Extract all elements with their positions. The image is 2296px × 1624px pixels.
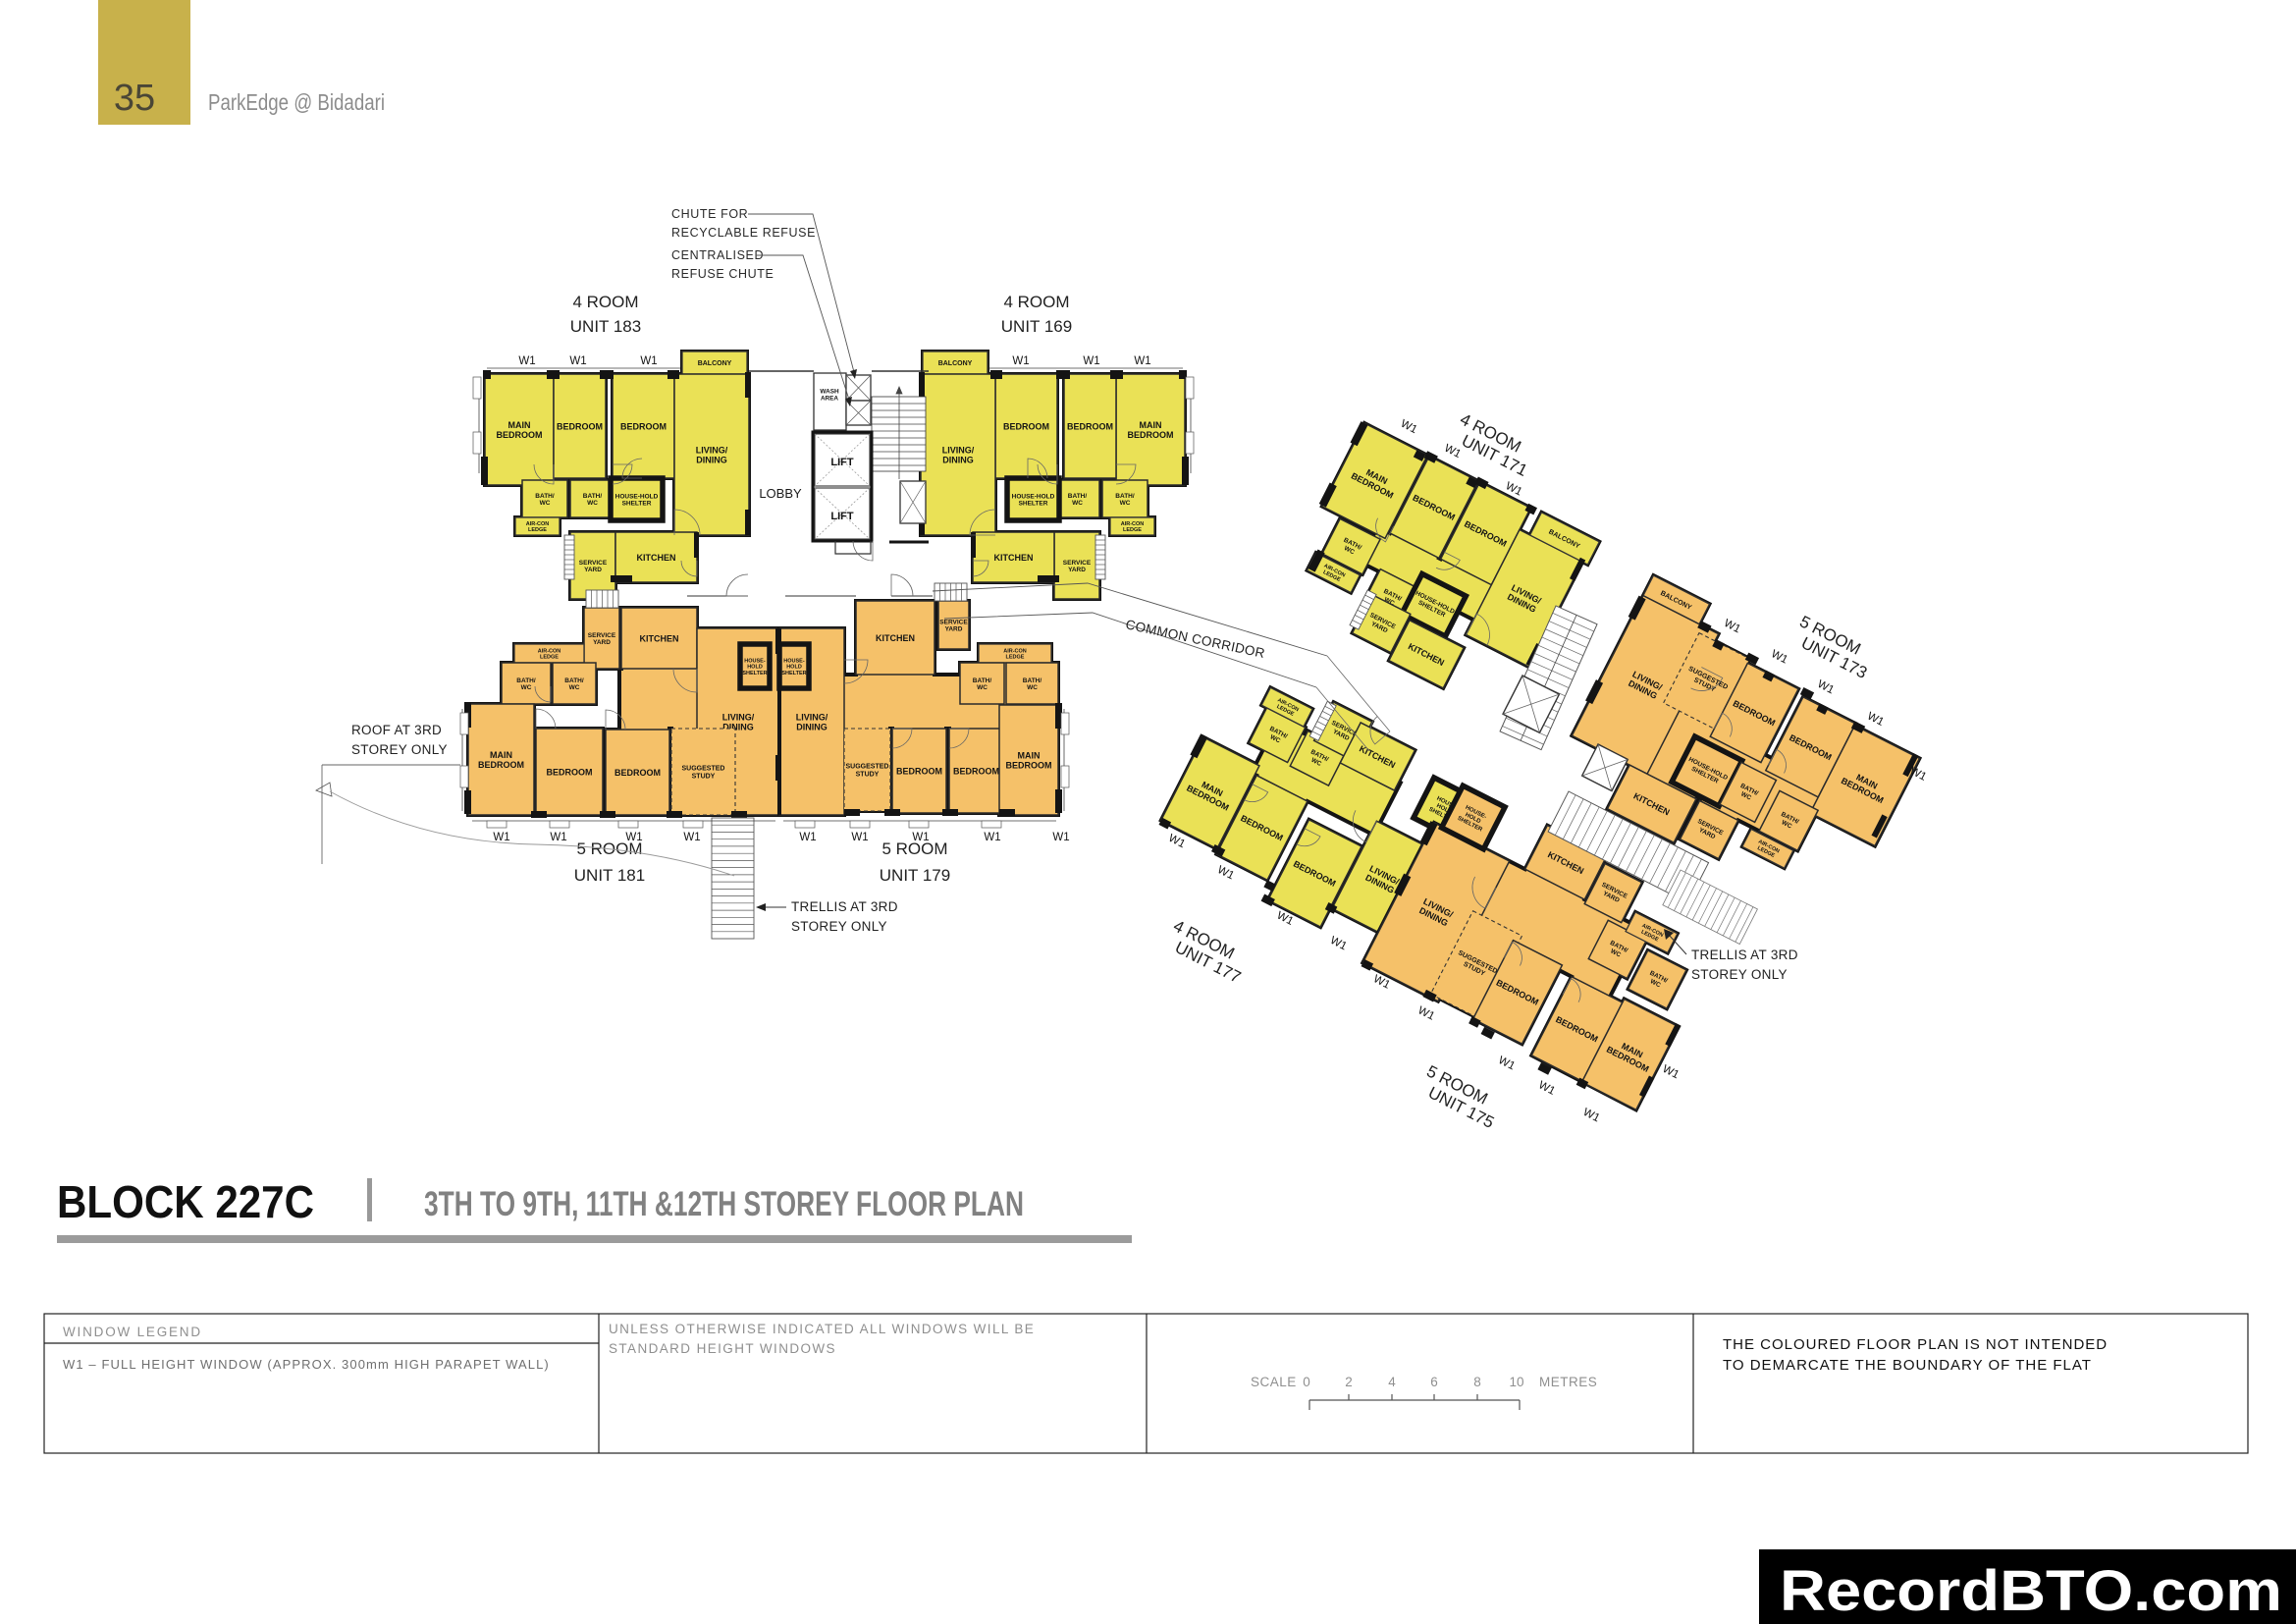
svg-text:UNIT 169: UNIT 169 xyxy=(1001,317,1072,336)
svg-text:RecordBTO.com: RecordBTO.com xyxy=(1780,1559,2282,1623)
svg-text:BEDROOM: BEDROOM xyxy=(896,766,942,776)
svg-text:W1: W1 xyxy=(640,355,657,367)
svg-text:4 ROOM: 4 ROOM xyxy=(1003,293,1069,311)
svg-text:W1: W1 xyxy=(1012,355,1029,367)
svg-text:W1: W1 xyxy=(550,832,566,843)
svg-text:STOREY ONLY: STOREY ONLY xyxy=(791,919,887,934)
svg-text:W1: W1 xyxy=(683,832,700,843)
svg-text:W1: W1 xyxy=(1083,355,1099,367)
svg-text:KITCHEN: KITCHEN xyxy=(876,633,915,643)
svg-text:LOBBY: LOBBY xyxy=(759,486,802,501)
svg-text:W1: W1 xyxy=(1134,355,1150,367)
svg-text:W1: W1 xyxy=(851,832,868,843)
svg-text:BEDROOM: BEDROOM xyxy=(1003,421,1049,431)
svg-text:4 ROOM: 4 ROOM xyxy=(572,293,638,311)
svg-text:6: 6 xyxy=(1430,1375,1438,1389)
svg-text:SCALE: SCALE xyxy=(1251,1375,1297,1389)
svg-text:5 ROOM: 5 ROOM xyxy=(881,839,947,858)
svg-text:35: 35 xyxy=(114,78,155,119)
svg-text:UNLESS OTHERWISE INDICATED ALL: UNLESS OTHERWISE INDICATED ALL WINDOWS W… xyxy=(609,1322,1035,1336)
svg-text:AIR-CONLEDGE: AIR-CONLEDGE xyxy=(526,521,550,533)
svg-text:UNIT 183: UNIT 183 xyxy=(570,317,641,336)
svg-text:10: 10 xyxy=(1509,1375,1523,1389)
svg-text:RECYCLABLE REFUSE: RECYCLABLE REFUSE xyxy=(671,226,816,240)
svg-text:2: 2 xyxy=(1345,1375,1353,1389)
svg-text:STOREY ONLY: STOREY ONLY xyxy=(351,742,448,757)
svg-text:BLOCK 227C: BLOCK 227C xyxy=(57,1176,314,1227)
svg-text:KITCHEN: KITCHEN xyxy=(637,553,676,563)
svg-text:UNIT 181: UNIT 181 xyxy=(574,866,645,885)
svg-text:AIR-CONLEDGE: AIR-CONLEDGE xyxy=(1003,649,1027,661)
svg-text:BEDROOM: BEDROOM xyxy=(953,766,999,776)
svg-text:LIVING/DINING: LIVING/DINING xyxy=(696,445,728,464)
svg-text:0: 0 xyxy=(1303,1375,1310,1389)
svg-text:BEDROOM: BEDROOM xyxy=(620,421,667,431)
svg-text:8: 8 xyxy=(1473,1375,1481,1389)
svg-text:KITCHEN: KITCHEN xyxy=(994,553,1034,563)
svg-text:BEDROOM: BEDROOM xyxy=(557,421,603,431)
svg-text:W1: W1 xyxy=(518,355,535,367)
svg-text:ROOF AT 3RD: ROOF AT 3RD xyxy=(351,723,442,737)
svg-text:WINDOW LEGEND: WINDOW LEGEND xyxy=(63,1325,202,1339)
svg-text:LIVING/DINING: LIVING/DINING xyxy=(942,445,975,464)
svg-text:BEDROOM: BEDROOM xyxy=(614,768,661,778)
svg-text:THE COLOURED FLOOR PLAN IS NOT: THE COLOURED FLOOR PLAN IS NOT INTENDED xyxy=(1723,1336,2108,1353)
svg-text:CHUTE FOR: CHUTE FOR xyxy=(671,207,748,221)
svg-text:4: 4 xyxy=(1388,1375,1396,1389)
svg-text:BALCONY: BALCONY xyxy=(938,360,973,367)
svg-text:ParkEdge @ Bidadari: ParkEdge @ Bidadari xyxy=(208,89,385,115)
svg-text:LIFT: LIFT xyxy=(830,511,853,522)
svg-text:LIVING/DINING: LIVING/DINING xyxy=(796,712,828,731)
svg-text:LIFT: LIFT xyxy=(830,457,853,468)
svg-text:KITCHEN: KITCHEN xyxy=(640,633,679,643)
svg-text:W1: W1 xyxy=(984,832,1000,843)
svg-text:STANDARD HEIGHT WINDOWS: STANDARD HEIGHT WINDOWS xyxy=(609,1341,836,1356)
svg-text:BEDROOM: BEDROOM xyxy=(547,767,593,777)
svg-text:BEDROOM: BEDROOM xyxy=(1067,421,1113,431)
svg-text:TRELLIS AT 3RD: TRELLIS AT 3RD xyxy=(791,899,898,914)
svg-text:AIR-CONLEDGE: AIR-CONLEDGE xyxy=(538,649,561,661)
svg-text:STOREY ONLY: STOREY ONLY xyxy=(1691,967,1788,982)
svg-text:TO DEMARCATE THE BOUNDARY OF T: TO DEMARCATE THE BOUNDARY OF THE FLAT xyxy=(1723,1357,2092,1374)
svg-text:BALCONY: BALCONY xyxy=(698,360,732,367)
svg-text:W1: W1 xyxy=(569,355,586,367)
svg-text:3TH TO 9TH, 11TH &12TH STOREY: 3TH TO 9TH, 11TH &12TH STOREY FLOOR PLAN xyxy=(424,1185,1024,1223)
svg-text:WASHAREA: WASHAREA xyxy=(820,388,839,402)
svg-text:W1 – FULL HEIGHT WINDOW (APPRO: W1 – FULL HEIGHT WINDOW (APPROX. 300mm H… xyxy=(63,1357,550,1372)
svg-text:REFUSE CHUTE: REFUSE CHUTE xyxy=(671,267,774,281)
svg-text:W1: W1 xyxy=(799,832,816,843)
svg-text:TRELLIS AT 3RD: TRELLIS AT 3RD xyxy=(1691,947,1798,962)
svg-text:W1: W1 xyxy=(1052,832,1069,843)
svg-text:UNIT 179: UNIT 179 xyxy=(880,866,950,885)
svg-text:CENTRALISED: CENTRALISED xyxy=(671,248,764,262)
svg-text:AIR-CONLEDGE: AIR-CONLEDGE xyxy=(1121,521,1145,533)
svg-text:METRES: METRES xyxy=(1539,1375,1597,1389)
svg-text:W1: W1 xyxy=(493,832,509,843)
